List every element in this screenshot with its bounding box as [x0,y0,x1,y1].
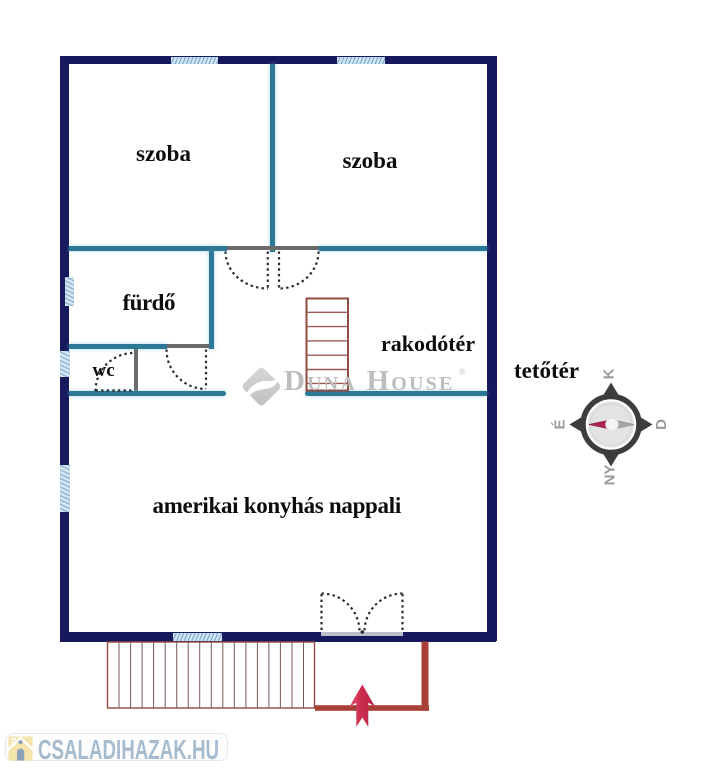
svg-text:É: É [552,419,569,429]
svg-text:K: K [601,368,618,379]
svg-text:D: D [653,419,670,430]
svg-text:NY: NY [602,465,619,486]
